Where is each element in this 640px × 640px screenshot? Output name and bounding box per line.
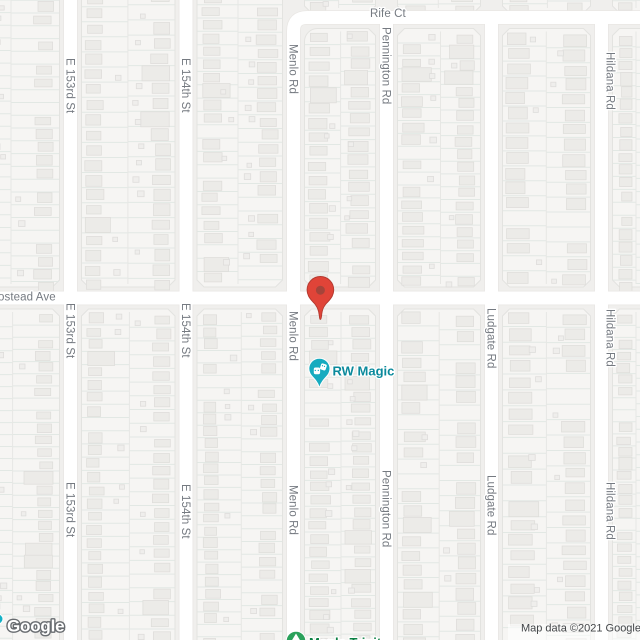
svg-text:Pennington Rd: Pennington Rd (379, 470, 391, 547)
svg-text:Maple Trinity: Maple Trinity (309, 635, 389, 640)
svg-text:Ludgate Rd: Ludgate Rd (484, 308, 496, 368)
svg-text:Google: Google (7, 617, 64, 636)
svg-text:E 154th St: E 154th St (179, 58, 191, 113)
svg-text:Hildana Rd: Hildana Rd (603, 309, 615, 367)
svg-text:Menlo Rd: Menlo Rd (286, 311, 298, 361)
svg-text:Pennington Rd: Pennington Rd (379, 27, 391, 104)
svg-text:RW Magic: RW Magic (333, 364, 395, 379)
svg-text:Menlo Rd: Menlo Rd (286, 44, 298, 94)
svg-text:Map data ©2021 Google: Map data ©2021 Google (521, 623, 640, 635)
svg-text:E 153rd St: E 153rd St (63, 482, 75, 538)
svg-text:Rife Ct: Rife Ct (370, 8, 407, 20)
svg-text:Hildana Rd: Hildana Rd (603, 52, 615, 110)
svg-text:E 153rd St: E 153rd St (63, 58, 75, 114)
svg-text:E 154th St: E 154th St (179, 484, 191, 539)
svg-text:ostead Ave: ostead Ave (0, 292, 56, 304)
svg-text:Hildana Rd: Hildana Rd (603, 482, 615, 540)
svg-text:E 154th St: E 154th St (179, 303, 191, 358)
svg-text:E 153rd St: E 153rd St (63, 303, 75, 359)
svg-text:Menlo Rd: Menlo Rd (286, 485, 298, 535)
svg-text:Ludgate Rd: Ludgate Rd (484, 475, 496, 535)
